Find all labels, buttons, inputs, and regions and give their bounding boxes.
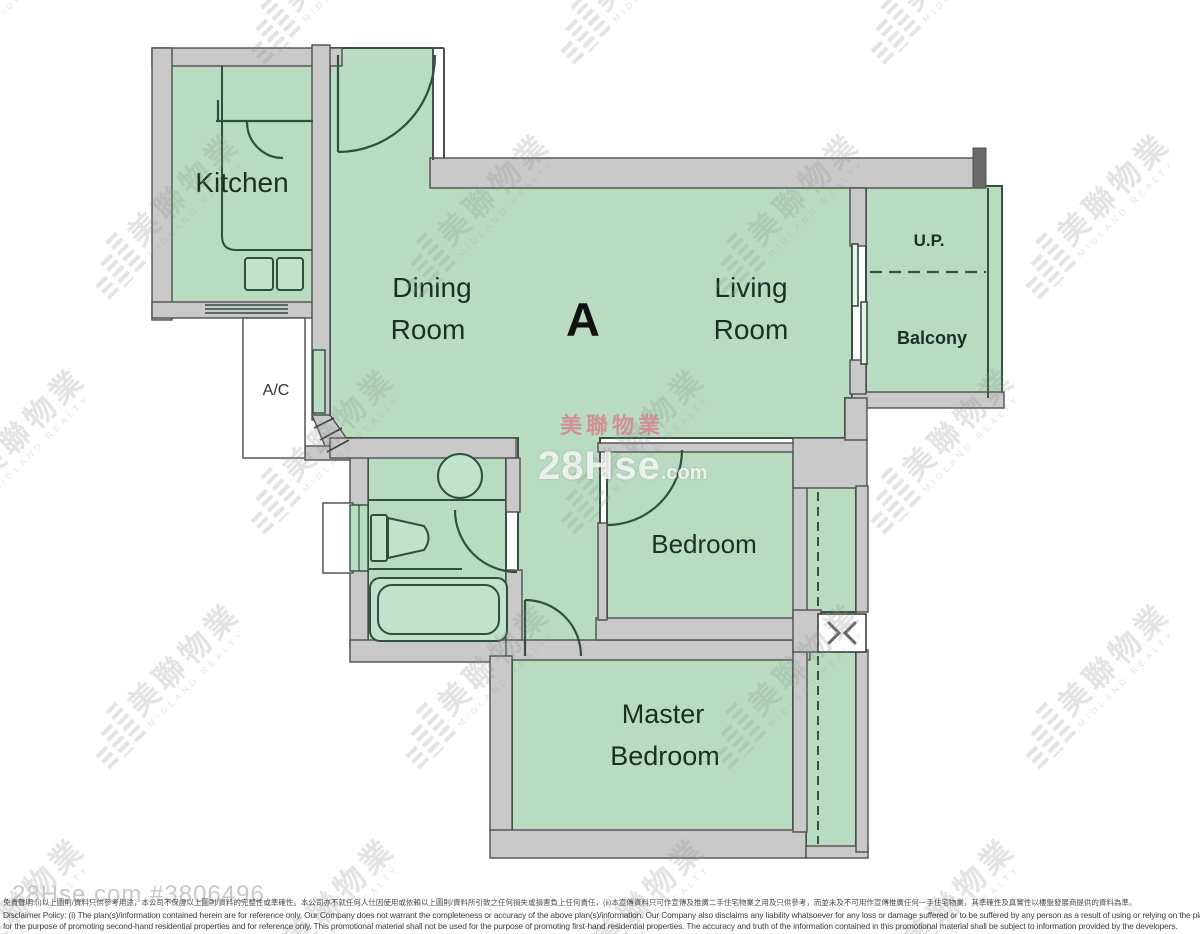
bedroom-label: Bedroom (651, 529, 757, 559)
dining-label-line1: Dining (392, 272, 471, 303)
floorplan-drawing: Kitchen Dining Room A Living Room U.P. B… (0, 0, 1200, 934)
ac-louver-box (818, 614, 866, 652)
unit-label: A (566, 293, 600, 346)
balcony-label: Balcony (897, 328, 967, 348)
ac-label: A/C (263, 382, 290, 399)
master-bay-strip (806, 650, 856, 850)
bathroom-window-box (323, 503, 353, 573)
bedroom-bay-strip (806, 486, 856, 612)
dining-west-window (313, 350, 325, 413)
top-right-wall-stub (973, 148, 986, 188)
balcony-area (866, 186, 1002, 398)
kitchen-appliance-1 (245, 258, 273, 290)
kitchen-label: Kitchen (195, 167, 288, 198)
balcony-sliding-door (852, 244, 867, 364)
bathtub-inner (378, 585, 499, 634)
dining-label-line2: Room (391, 314, 466, 345)
master-label-line1: Master (622, 699, 705, 729)
kitchen-appliance-2 (277, 258, 303, 290)
floorplan-page: { "floorplan": { "unit_label": "A", "roo… (0, 0, 1200, 934)
living-label-line2: Room (714, 314, 789, 345)
master-label-line2: Bedroom (610, 741, 720, 771)
bathroom-sink (438, 454, 482, 498)
toilet-tank (371, 515, 387, 561)
living-label-line1: Living (714, 272, 787, 303)
up-label: U.P. (914, 231, 945, 250)
